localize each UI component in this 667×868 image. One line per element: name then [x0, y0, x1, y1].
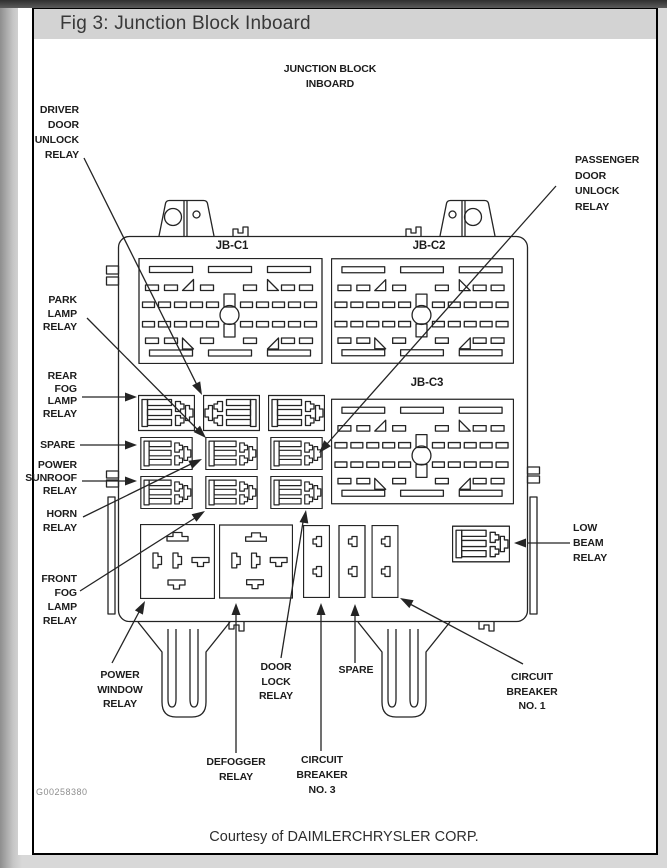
callout-power-window-relay: POWER WINDOW RELAY	[85, 668, 155, 712]
socket-low-beam-relay	[453, 526, 510, 562]
callout-rear-fog-lamp-relay: REAR FOG LAMP RELAY	[8, 370, 77, 420]
socket-spare-bottom	[339, 526, 365, 598]
page-top-strip	[0, 0, 667, 8]
connector-jb-c3	[331, 399, 513, 503]
courtesy-line: Courtesy of DAIMLERCHRYSLER CORP.	[32, 829, 656, 845]
socket-rear-fog-lamp-relay	[139, 396, 195, 431]
connector-label-jb-c1: JB-C1	[195, 240, 269, 254]
clip-top-right	[406, 227, 421, 236]
socket-door-lock-relay	[271, 476, 322, 508]
mount-bracket-right	[440, 201, 495, 237]
callout-circuit-breaker-no1: CIRCUIT BREAKER NO. 1	[497, 670, 567, 714]
side-flange-left	[108, 497, 115, 614]
callout-passenger-door-unlock-relay: PASSENGER DOOR UNLOCK RELAY	[575, 153, 660, 215]
diagram-heading: JUNCTION BLOCK INBOARD	[255, 62, 405, 92]
socket-horn-relay	[206, 476, 257, 508]
junction-block-diagram	[0, 0, 667, 868]
callout-front-fog-lamp-relay: FRONT FOG LAMP RELAY	[8, 572, 77, 628]
connector-label-jb-c2: JB-C2	[392, 240, 466, 254]
side-flange-right	[530, 497, 537, 614]
arrow-driver-door	[84, 158, 197, 385]
clip-top-left	[233, 227, 248, 236]
connector-jb-c2	[331, 259, 513, 363]
arrow-power-window	[112, 612, 139, 663]
socket-circuit-breaker-no1	[372, 526, 398, 598]
callout-defogger-relay: DEFOGGER RELAY	[201, 755, 271, 785]
socket-power-window-relay	[141, 525, 215, 599]
socket-driver-door-unlock-relay	[204, 396, 260, 431]
callout-spare-bottom: SPARE	[326, 664, 386, 678]
socket-top-right	[269, 396, 325, 431]
figure-code: G00258380	[36, 787, 88, 797]
callout-low-beam-relay: LOW BEAM RELAY	[573, 521, 643, 566]
callout-door-lock-relay: DOOR LOCK RELAY	[241, 660, 311, 704]
socket-spare	[141, 437, 192, 469]
callout-park-lamp-relay: PARK LAMP RELAY	[8, 294, 77, 335]
arrow-passenger-door	[327, 186, 556, 444]
callout-circuit-breaker-no3: CIRCUIT BREAKER NO. 3	[289, 753, 355, 798]
connector-label-jb-c3: JB-C3	[390, 377, 464, 391]
socket-defogger-relay	[219, 525, 292, 598]
callout-horn-relay: HORN RELAY	[8, 507, 77, 535]
clip-bottom-right	[479, 622, 494, 631]
socket-passenger-door-unlock-relay	[271, 437, 322, 469]
arrow-circuit-breaker-no1	[410, 604, 523, 664]
connector-jb-c1	[139, 259, 322, 364]
socket-park-lamp-relay	[206, 437, 257, 469]
callout-driver-door-unlock-relay: DRIVER DOOR UNLOCK RELAY	[8, 103, 79, 163]
callout-power-sunroof-relay: POWER SUNROOF RELAY	[8, 459, 77, 498]
socket-power-sunroof-relay	[141, 476, 192, 508]
socket-circuit-breaker-no3	[304, 526, 330, 598]
callout-spare-left: SPARE	[8, 439, 75, 453]
